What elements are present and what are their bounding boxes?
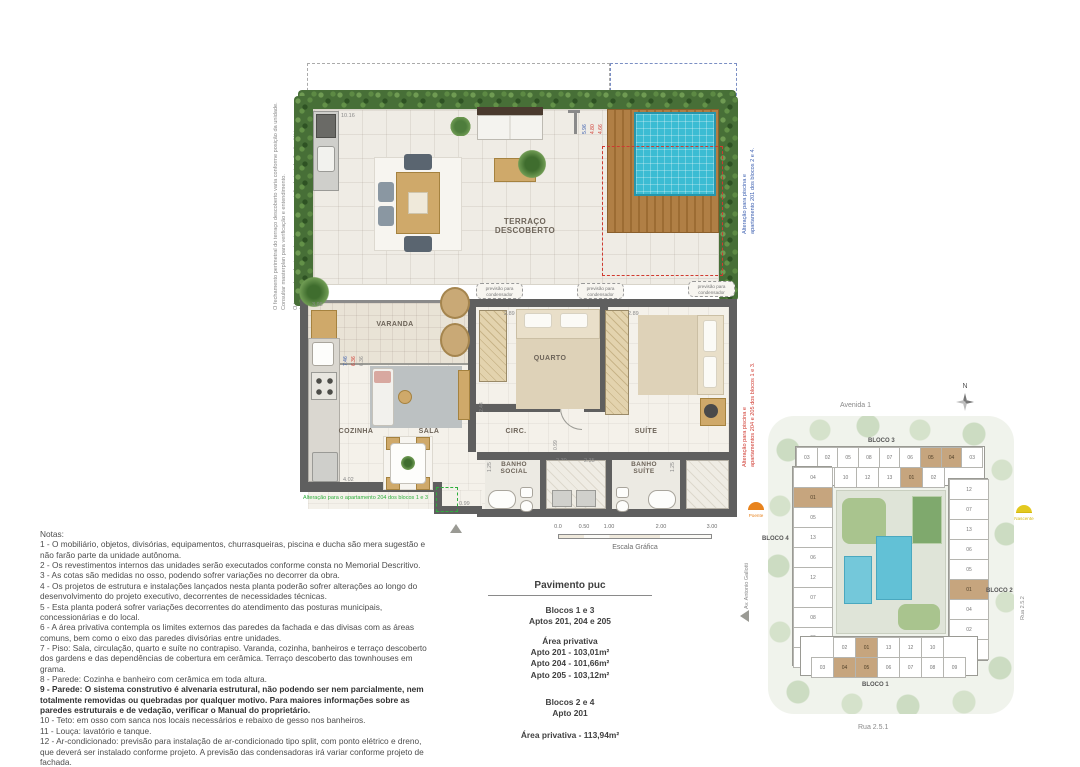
dim-cozinha: 4.02 bbox=[343, 477, 354, 483]
unit-number: 03 bbox=[961, 447, 983, 468]
info-area-205: Apto 205 - 103,12m² bbox=[488, 670, 652, 681]
lounger-cushions bbox=[477, 115, 543, 140]
note-item: 2 - Os revestimentos internos das unidad… bbox=[40, 560, 434, 570]
banho-social-label: BANHO SOCIAL bbox=[492, 461, 536, 475]
quarto-pillow-2 bbox=[560, 313, 588, 328]
unit-number: 03 bbox=[796, 447, 818, 468]
bloco-1-label: BLOCO 1 bbox=[862, 682, 889, 688]
bloco-1-row-2: 03040506070809 bbox=[802, 658, 976, 678]
street-right-label: Rua 2.5.2 bbox=[1020, 572, 1026, 620]
note-item: 10 - Teto: em osso com sanca nos locais … bbox=[40, 715, 434, 725]
info-title: Pavimento puc bbox=[488, 580, 652, 591]
unit-number: 08 bbox=[921, 657, 944, 678]
quarto-blanket bbox=[516, 338, 600, 409]
info-area-title: Área privativa bbox=[488, 636, 652, 647]
info-area-201: Apto 201 - 103,01m² bbox=[488, 647, 652, 658]
washer-2 bbox=[576, 490, 596, 507]
unit-number: 03 bbox=[811, 657, 834, 678]
unit-number: 07 bbox=[899, 657, 922, 678]
street-top-label: Avenida 1 bbox=[840, 402, 871, 409]
note-item: 8 - Parede: Cozinha e banheiro com cerâm… bbox=[40, 674, 434, 684]
sala-label: SALA bbox=[412, 428, 446, 435]
terrace-chair-left-1 bbox=[378, 182, 394, 202]
rattan-chair-1 bbox=[440, 287, 470, 319]
unit-number: 06 bbox=[949, 539, 989, 560]
unit-number: 05 bbox=[855, 657, 878, 678]
banho-social-toilet bbox=[520, 500, 533, 512]
suite-blanket bbox=[638, 315, 698, 395]
fridge bbox=[312, 452, 338, 482]
dim-kitchen-c: 6.36 bbox=[359, 344, 365, 366]
unit-number: 05 bbox=[793, 507, 833, 528]
unit-number: 01 bbox=[855, 637, 878, 658]
terrace-sink bbox=[317, 146, 335, 172]
wall-right bbox=[729, 299, 737, 517]
note-item-structural: 9 - Parede: O sistema construtivo é alve… bbox=[40, 684, 434, 715]
dim-quarto: 2.89 bbox=[504, 311, 515, 317]
condenser-box-3: previsão para condensador bbox=[688, 281, 735, 297]
scale-tick-2: 1.00 bbox=[601, 524, 617, 530]
sofa-pillow bbox=[374, 371, 391, 383]
dim-banho-suite-a: 1.25 bbox=[670, 458, 676, 472]
unit-number: 06 bbox=[877, 657, 900, 678]
sala-table-plant bbox=[401, 456, 415, 470]
dim-pool-b: 4.80 bbox=[590, 108, 596, 134]
note-item: 6 - A área privativa contempla os limite… bbox=[40, 622, 434, 643]
cozinha-label: COZINHA bbox=[336, 428, 376, 435]
unit-number: 07 bbox=[949, 499, 989, 520]
info-area24: Área privativa - 113,94m² bbox=[488, 730, 652, 741]
info-divider bbox=[488, 595, 652, 596]
grill bbox=[316, 114, 336, 138]
wall-bath-divider-2 bbox=[606, 452, 612, 517]
info-panel: Pavimento puc Blocos 1 e 3 Aptos 201, 20… bbox=[488, 580, 652, 741]
unit-number: 09 bbox=[943, 657, 966, 678]
entry-marker-icon bbox=[450, 524, 462, 533]
unit-number: 02 bbox=[922, 467, 945, 488]
scale-tick-3: 2.00 bbox=[653, 524, 669, 530]
scale-bar-label: Escala Gráfica bbox=[552, 544, 718, 551]
unit-number: 01 bbox=[949, 579, 989, 600]
suite-desk-chair bbox=[704, 404, 718, 418]
bloco-2-strip: 120713060501040203 bbox=[948, 478, 988, 661]
unit-number: 04 bbox=[941, 447, 963, 468]
shower-post bbox=[574, 110, 577, 134]
unit-number: 06 bbox=[899, 447, 921, 468]
terrace-table-runner bbox=[408, 192, 428, 214]
alteration-note-blocks-1-3: Alteração para piscina e apartamentos 20… bbox=[742, 292, 757, 467]
sun-west-icon bbox=[748, 502, 764, 510]
unit-number: 02 bbox=[833, 637, 856, 658]
unit-number: 12 bbox=[793, 567, 833, 588]
note-item: 5 - Esta planta poderá sofrer variações … bbox=[40, 602, 434, 623]
washer-1 bbox=[552, 490, 572, 507]
alteration-note-blocks-2-4: Alteração para piscina e apartamento 201… bbox=[742, 64, 757, 234]
varanda-table bbox=[311, 310, 337, 340]
scale-bar-rule bbox=[558, 534, 712, 539]
street-bottom-label: Rua 2.5.1 bbox=[858, 724, 888, 731]
note-item: 1 - O mobiliário, objetos, divisórias, e… bbox=[40, 539, 434, 560]
unit-number: 12 bbox=[856, 467, 879, 488]
kitchen-sink bbox=[312, 342, 334, 366]
circ-label: CIRC. bbox=[500, 428, 532, 435]
dim-banho-social-a: 1.25 bbox=[487, 458, 493, 472]
banho-suite-sink bbox=[616, 487, 629, 498]
unit-number: 06 bbox=[793, 547, 833, 568]
unit-number: 05 bbox=[949, 559, 989, 580]
dim-terrace-width: 10.16 bbox=[341, 113, 355, 119]
dim-pool-a: 5.96 bbox=[582, 108, 588, 134]
terrace-label: TERRAÇO DESCOBERTO bbox=[478, 217, 572, 235]
scale-bar: 0.0 0.50 1.00 2.00 3.00 Escala Gráfica bbox=[552, 524, 718, 556]
bloco-3-label: BLOCO 3 bbox=[868, 438, 895, 444]
unit-number: 04 bbox=[793, 467, 833, 488]
terrace-chair-left-2 bbox=[378, 206, 394, 226]
dim-kitchen-b: 6.36 bbox=[351, 344, 357, 366]
sun-east-icon bbox=[1016, 505, 1032, 513]
unit-number: 01 bbox=[900, 467, 923, 488]
street-left-label: Av. Antonio Gallotti bbox=[744, 543, 750, 609]
condenser-box-2: previsão para condensador bbox=[577, 283, 624, 299]
courtyard-lawn-2 bbox=[898, 604, 940, 630]
quarto-wardrobe bbox=[479, 310, 507, 382]
dim-kitchen-a: 7.46 bbox=[343, 344, 349, 366]
wall-left bbox=[300, 299, 308, 492]
suite-closet bbox=[686, 460, 729, 509]
suite-pillow-1 bbox=[703, 320, 717, 352]
info-blocks13-aptos: Aptos 201, 204 e 205 bbox=[488, 616, 652, 627]
floorplan-page: O fechamento perimetral do terraço desco… bbox=[0, 0, 1080, 767]
condenser-box-1: previsão para condensador bbox=[476, 283, 523, 299]
banho-social-tub bbox=[488, 490, 516, 509]
suite-label: SUÍTE bbox=[626, 428, 666, 435]
note-item: 7 - Piso: Sala, circulação, quarto e suí… bbox=[40, 643, 434, 674]
banho-suite-toilet bbox=[616, 500, 629, 512]
unit-number: 13 bbox=[877, 637, 900, 658]
quarto-label: QUARTO bbox=[528, 355, 572, 362]
note-item: 11 - Louça: lavatório e tanque. bbox=[40, 726, 434, 736]
planter-plant bbox=[518, 150, 546, 178]
dim-pool-c: 4.66 bbox=[598, 108, 604, 134]
suite-wardrobe bbox=[605, 310, 629, 415]
courtyard-pool-main bbox=[876, 536, 912, 600]
unit-number: 12 bbox=[899, 637, 922, 658]
courtyard-pool-lap bbox=[844, 556, 872, 604]
dim-sala: 2.44 bbox=[479, 394, 485, 412]
lounger-back bbox=[477, 107, 543, 115]
unit-number: 01 bbox=[793, 487, 833, 508]
entrance-arrow-icon bbox=[740, 610, 749, 622]
bloco-2-label: BLOCO 2 bbox=[986, 588, 1013, 594]
info-blocks24: Blocos 2 e 4 bbox=[488, 697, 652, 708]
varanda-label: VARANDA bbox=[368, 321, 422, 328]
compass-icon bbox=[956, 393, 974, 411]
sun-west-label: Poente bbox=[744, 513, 768, 518]
dim-circ: 0.99 bbox=[553, 434, 559, 450]
dim-suite: 2.89 bbox=[628, 311, 639, 317]
unit-number: 12 bbox=[949, 479, 989, 500]
hedge-left bbox=[294, 96, 313, 306]
scale-tick-4: 3.00 bbox=[704, 524, 720, 530]
compass-n-label: N bbox=[956, 383, 974, 390]
unit-number: 04 bbox=[949, 599, 989, 620]
sun-east-label: Nascente bbox=[1010, 516, 1038, 521]
unit-number: 02 bbox=[817, 447, 839, 468]
scale-tick-1: 0.50 bbox=[576, 524, 592, 530]
bloco-1-row-1: 0201131210 bbox=[802, 638, 976, 658]
suite-pillow-2 bbox=[703, 356, 717, 388]
unit-number: 05 bbox=[920, 447, 942, 468]
scale-tick-0: 0.0 bbox=[550, 524, 566, 530]
bloco-3-row-1: 030205080706050403 bbox=[797, 448, 983, 468]
unit-number: 13 bbox=[878, 467, 901, 488]
unit-number: 07 bbox=[879, 447, 901, 468]
banho-social-sink bbox=[520, 487, 533, 498]
notes-title: Notas: bbox=[40, 529, 434, 539]
terrace-chair-top bbox=[404, 154, 432, 170]
banho-suite-label: BANHO SUÍTE bbox=[622, 461, 666, 475]
coffee-table bbox=[398, 390, 412, 404]
notes-block: Notas: 1 - O mobiliário, objetos, divisó… bbox=[40, 529, 434, 767]
green-alteration-note: Alteração para o apartamento 204 dos blo… bbox=[303, 495, 443, 501]
note-item: 4 - Os projetos de estrutura e instalaçõ… bbox=[40, 581, 434, 602]
unit-number: 13 bbox=[949, 519, 989, 540]
note-item: 3 - As cotas são medidas no osso, podend… bbox=[40, 570, 434, 580]
unit-number: 08 bbox=[858, 447, 880, 468]
bloco-4-label: BLOCO 4 bbox=[762, 536, 789, 542]
unit-number: 13 bbox=[793, 527, 833, 548]
banho-suite-tub bbox=[648, 490, 676, 509]
note-item: 12 - Ar-condicionado: previsão para inst… bbox=[40, 736, 434, 767]
quarto-pillow-1 bbox=[524, 313, 552, 328]
unit-number: 07 bbox=[793, 587, 833, 608]
unit-number: 10 bbox=[834, 467, 857, 488]
info-blocks13: Blocos 1 e 3 bbox=[488, 605, 652, 616]
potted-plant bbox=[450, 117, 471, 136]
terrace-chair-bottom bbox=[404, 236, 432, 252]
dim-entry: 0.99 bbox=[459, 501, 470, 507]
pool-alteration-boundary-red bbox=[602, 146, 723, 276]
terrace-enclosure-note: O fechamento perimetral do terraço desco… bbox=[272, 95, 289, 310]
stove bbox=[311, 372, 337, 400]
info-blocks24-aptos: Apto 201 bbox=[488, 708, 652, 719]
unit-number: 04 bbox=[833, 657, 856, 678]
sports-court bbox=[912, 496, 942, 544]
bloco-2-col: 120713060501040203 bbox=[950, 480, 986, 660]
unit-number: 05 bbox=[837, 447, 859, 468]
info-area-204: Apto 204 - 101,66m² bbox=[488, 658, 652, 669]
unit-number: 10 bbox=[921, 637, 944, 658]
unit-number: 08 bbox=[793, 607, 833, 628]
rattan-chair-2 bbox=[440, 323, 470, 357]
sideboard bbox=[458, 370, 470, 420]
dim-closet: 2.35 bbox=[584, 458, 595, 464]
shower-head bbox=[568, 110, 580, 113]
bloco-1-strip: 0201131210 03040506070809 bbox=[800, 636, 978, 676]
dim-varanda-table: 3.98 bbox=[312, 302, 323, 308]
